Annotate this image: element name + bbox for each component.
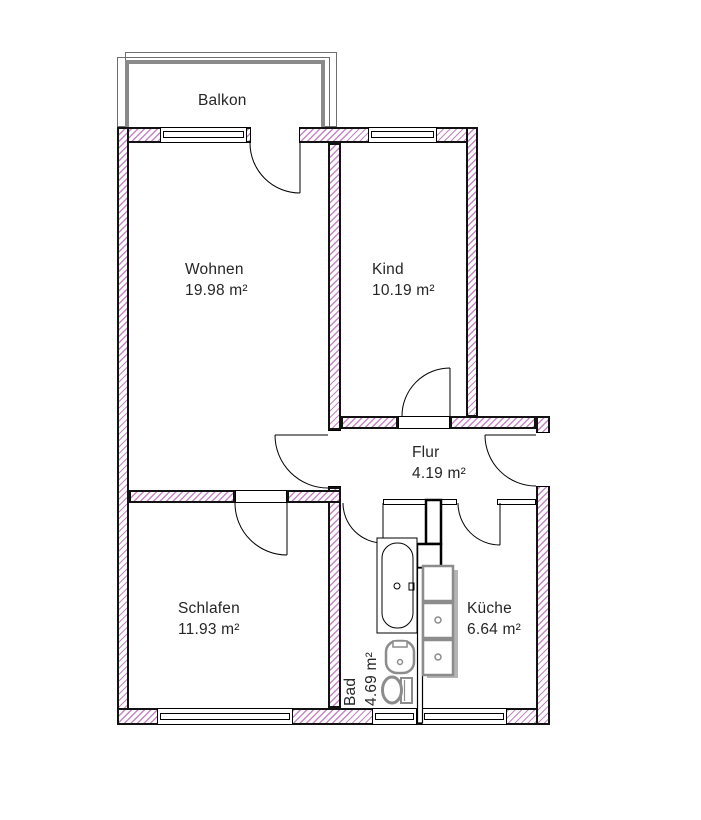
bad-door <box>343 503 383 543</box>
kueche-door <box>458 503 500 545</box>
room-label-schlafen: Schlafen 11.93 m² <box>178 598 240 640</box>
room-area: 11.93 m² <box>178 619 240 640</box>
room-label-kind: Kind 10.19 m² <box>372 259 435 301</box>
kitchen-sink-unit-icon <box>423 566 458 678</box>
room-name: Schlafen <box>178 598 240 619</box>
wohnen-door <box>275 435 328 488</box>
balcony-door <box>250 143 300 193</box>
room-name: Wohnen <box>185 259 248 280</box>
washbasin-icon <box>386 641 414 673</box>
room-area: 6.64 m² <box>467 619 521 640</box>
room-name: Kind <box>372 259 435 280</box>
room-area: 19.98 m² <box>185 280 248 301</box>
toilet-icon <box>383 677 413 703</box>
room-area: 4.69 m² <box>361 634 382 706</box>
bathtub-icon <box>377 538 417 633</box>
room-name: Balkon <box>198 90 247 111</box>
room-name: Bad <box>340 634 361 706</box>
entrance-door <box>485 435 536 486</box>
room-label-flur: Flur 4.19 m² <box>412 442 466 484</box>
room-name: Flur <box>412 442 466 463</box>
room-area: 10.19 m² <box>372 280 435 301</box>
kind-door <box>402 368 450 416</box>
balcony-label: Balkon <box>198 90 247 111</box>
floor-plan: Balkon Wohnen 19.98 m² Kind 10.19 m² Flu… <box>0 0 701 820</box>
schlafen-door <box>235 503 287 555</box>
room-area: 4.19 m² <box>412 463 466 484</box>
room-label-bad: Bad 4.69 m² <box>340 634 382 706</box>
room-name: Küche <box>467 598 521 619</box>
room-label-wohnen: Wohnen 19.98 m² <box>185 259 248 301</box>
room-label-kueche: Küche 6.64 m² <box>467 598 521 640</box>
